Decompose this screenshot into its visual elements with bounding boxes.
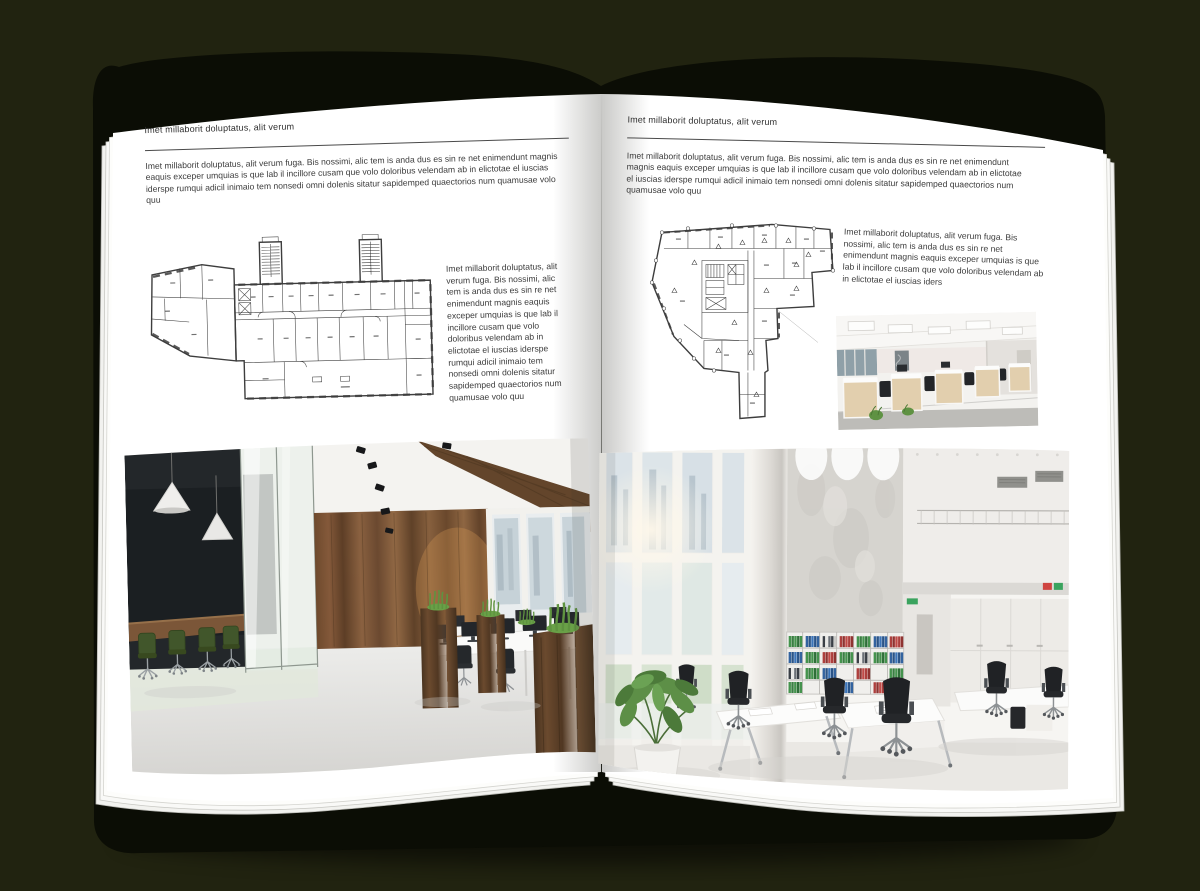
right-office-photo [598,445,1069,799]
magazine-spread-mockup: Imet millaborit doluptatus, alit verum I… [0,0,1200,891]
right-page-title: Imet millaborit doluptatus, alit verum [627,114,777,127]
right-header-divider [627,137,1045,147]
left-side-paragraph: Imet millaborit doluptatus, alit verum f… [446,261,573,404]
right-intro-paragraph: Imet millaborit doluptatus, alit verum f… [626,150,1024,203]
right-floor-plan [644,220,840,426]
left-header-divider [145,138,569,152]
right-page: Imet millaborit doluptatus, alit verum I… [589,90,1117,823]
left-intro-paragraph: Imet millaborit doluptatus, alit verum f… [145,151,566,207]
left-office-photo [124,436,596,777]
right-side-paragraph: Imet millaborit doluptatus, alit verum f… [842,226,1048,292]
left-page-title: Imet millaborit doluptatus, alit verum [144,121,294,135]
left-page: Imet millaborit doluptatus, alit verum I… [98,92,610,809]
right-small-photo [836,312,1038,430]
left-floor-plan [141,228,447,417]
